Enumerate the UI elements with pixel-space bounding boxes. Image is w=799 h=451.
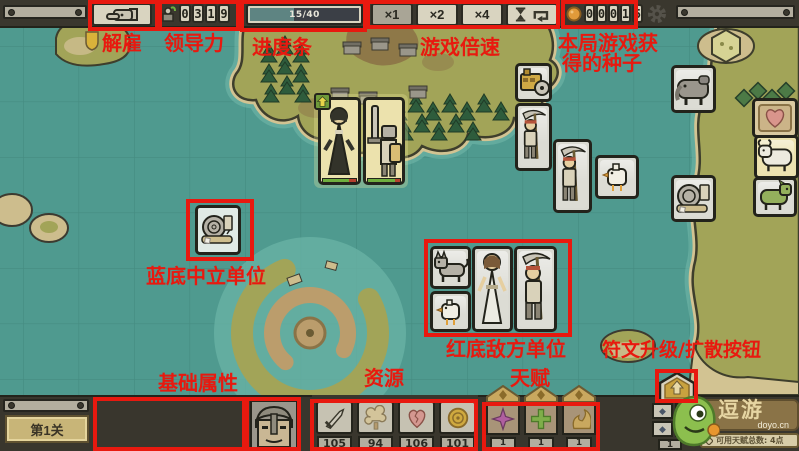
unit-card-seed-machine[interactable]	[515, 63, 552, 102]
priestess-hp-bar	[322, 178, 357, 183]
coin-icon	[445, 405, 471, 431]
unit-card-chicken-2[interactable]	[595, 155, 639, 199]
top-left-scroll-decoration	[3, 5, 87, 19]
unit-portrait	[250, 400, 298, 449]
dismiss-hand-icon	[105, 6, 139, 23]
progress-label: 15/40	[250, 8, 359, 21]
heart-icon	[404, 405, 430, 431]
speed-x4-button[interactable]: ×4	[461, 3, 503, 26]
talent-roof-1	[486, 385, 520, 403]
talent-count-3: 1	[566, 437, 592, 449]
resource-value-heart: 106	[399, 436, 434, 450]
talent-roof-3	[562, 385, 596, 403]
pause-loop-button[interactable]	[506, 3, 558, 26]
unit-card-farmer-3[interactable]	[553, 139, 592, 213]
unit-card-farmer[interactable]	[514, 246, 557, 332]
watermark-brand: 逗游	[718, 400, 797, 421]
resource-slot-sword	[316, 401, 353, 434]
talent-slot-flame[interactable]	[562, 403, 596, 435]
settings-gear-icon[interactable]	[646, 3, 668, 25]
unit-card-cat[interactable]	[430, 246, 471, 289]
watermark-site: doyo.cn	[718, 421, 797, 430]
flame-talent-icon	[567, 407, 591, 431]
top-hud-bar: 0 3 1 9 15/40 ×1 ×2 ×4	[0, 0, 799, 28]
seed-icon	[566, 6, 582, 22]
stage-label: 第1关	[30, 420, 63, 439]
resource-slot-plant	[357, 401, 394, 434]
resource-value-plant: 94	[358, 436, 393, 450]
upgrade-arrow-badge	[314, 93, 331, 110]
loop-icon	[531, 6, 550, 23]
unit-card-knight[interactable]	[363, 97, 405, 185]
dismiss-button[interactable]	[92, 3, 152, 26]
sword-icon	[322, 405, 348, 431]
plant-icon	[363, 405, 389, 431]
top-right-scroll-decoration	[676, 5, 795, 19]
unit-card-neutral-snail[interactable]	[195, 205, 241, 255]
unit-card-farmer-2[interactable]	[515, 103, 552, 171]
leadership-icon	[160, 6, 176, 22]
wave-progress-bar: 15/40	[246, 4, 363, 25]
cross-talent-icon	[529, 407, 553, 431]
stage-banner: 第1关	[5, 415, 89, 443]
knight-hp-bar	[367, 178, 401, 183]
unit-card-snail-2[interactable]	[671, 175, 716, 222]
resource-slot-coin	[439, 401, 476, 434]
speed-x1-button[interactable]: ×1	[371, 3, 413, 26]
unit-card-villager-woman[interactable]	[472, 246, 513, 332]
unit-card-heart-banner[interactable]	[752, 98, 798, 138]
hourglass-icon	[514, 6, 527, 23]
leadership-counter: 0 3 1 9	[179, 4, 230, 23]
unit-card-bull[interactable]	[754, 135, 799, 179]
unit-card-green-dog[interactable]	[753, 177, 797, 217]
speed-x2-button[interactable]: ×2	[416, 3, 458, 26]
talent-count-1: 1	[490, 437, 516, 449]
resource-slot-heart	[398, 401, 435, 434]
talent-slot-cross[interactable]	[524, 403, 558, 435]
resource-value-sword: 105	[317, 436, 352, 450]
talent-roof-2	[524, 385, 558, 403]
unit-card-elephant[interactable]	[671, 65, 716, 113]
talent-count-2: 1	[528, 437, 554, 449]
game-screen: 0 3 1 9 15/40 ×1 ×2 ×4	[0, 0, 799, 451]
bottom-left-scroll-decoration	[3, 399, 89, 412]
unit-card-chicken[interactable]	[430, 291, 471, 332]
star-talent-icon	[491, 407, 515, 431]
talent-slot-star[interactable]	[486, 403, 520, 435]
watermark-mascot	[668, 392, 720, 448]
resource-value-coin: 101	[440, 436, 475, 450]
seed-counter: 0 0 0 1 5	[584, 4, 643, 23]
